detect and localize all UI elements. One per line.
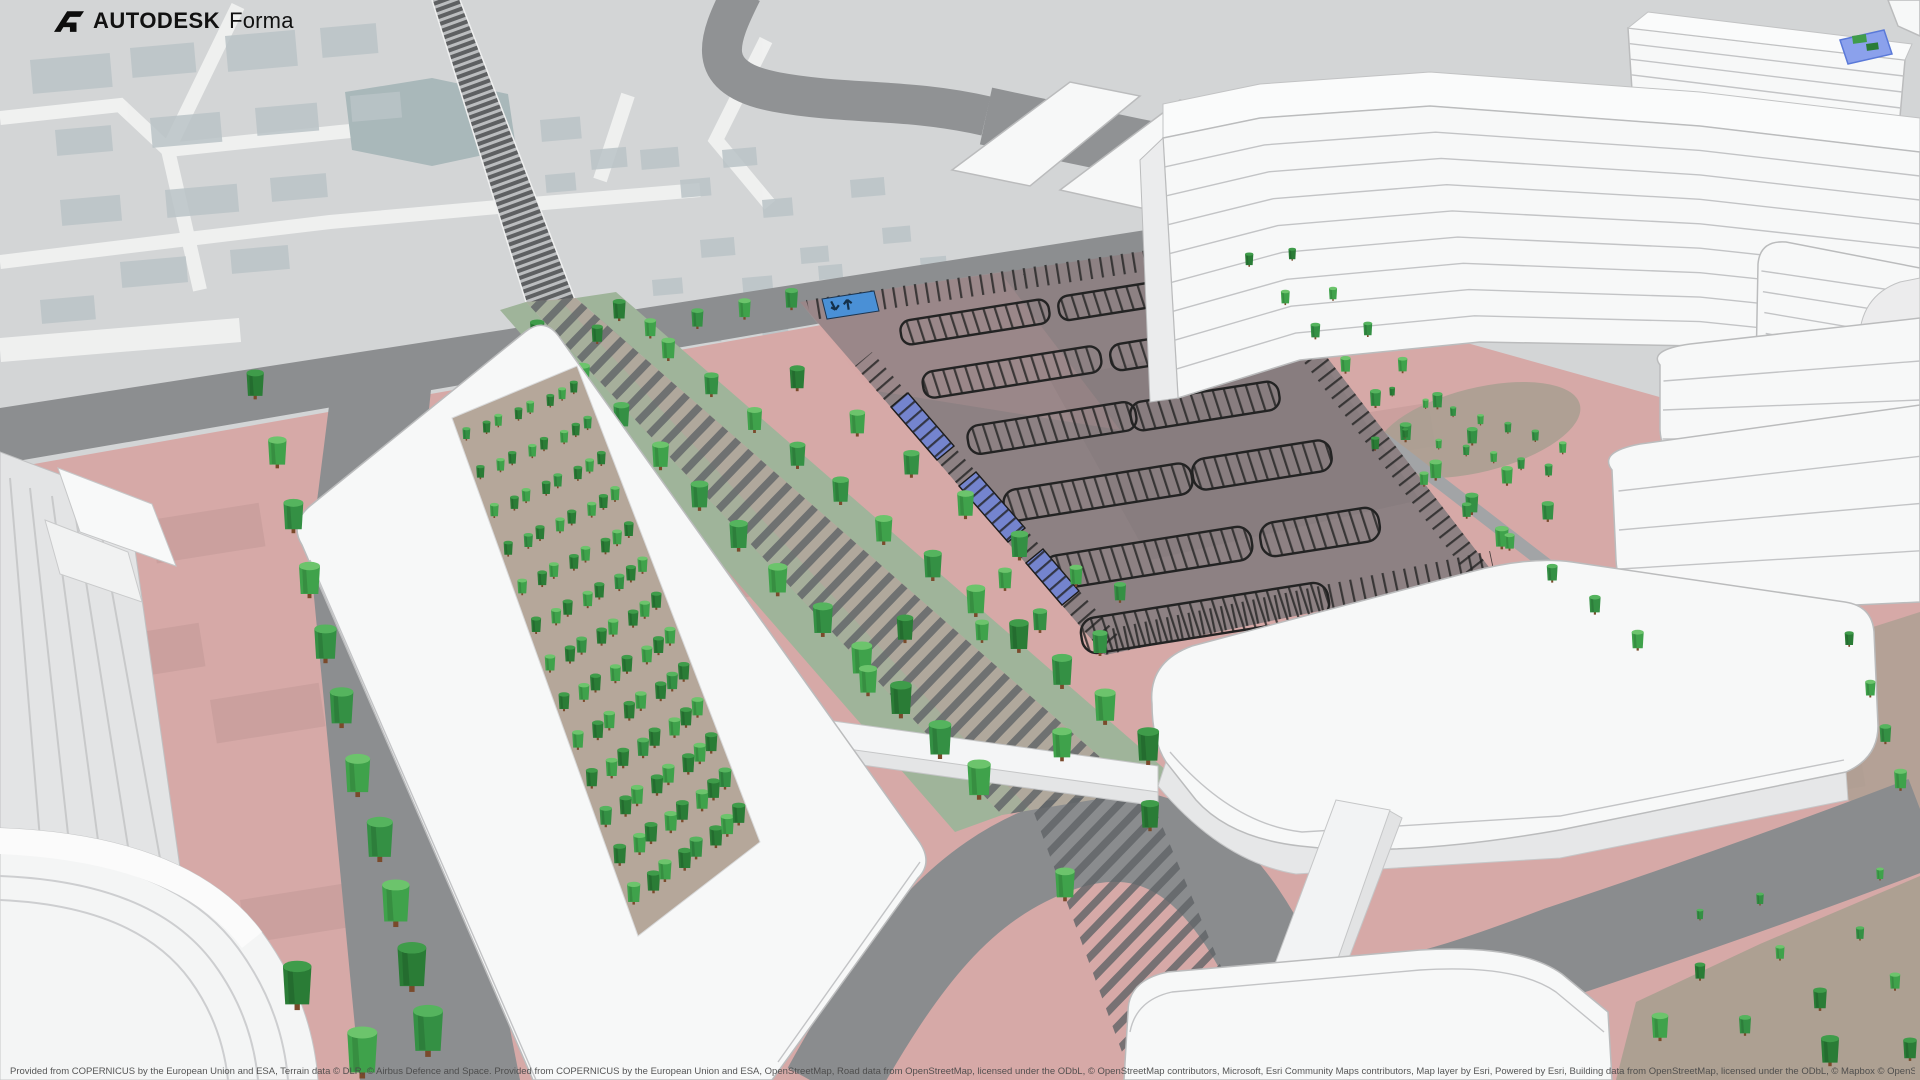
tree[interactable] — [413, 1005, 443, 1057]
tree[interactable] — [590, 674, 601, 693]
tree[interactable] — [738, 298, 750, 319]
tree[interactable] — [572, 423, 580, 437]
tree[interactable] — [628, 610, 639, 628]
tree[interactable] — [1420, 471, 1429, 486]
tree[interactable] — [504, 541, 513, 557]
tree[interactable] — [627, 882, 640, 905]
tree[interactable] — [1033, 608, 1047, 633]
tree[interactable] — [631, 785, 643, 806]
tree[interactable] — [1856, 926, 1864, 940]
tree[interactable] — [610, 664, 621, 683]
tree[interactable] — [682, 753, 694, 774]
tree[interactable] — [567, 510, 576, 526]
map-footprint — [800, 246, 829, 264]
tree[interactable] — [247, 369, 264, 399]
tree[interactable] — [1504, 533, 1514, 551]
tree[interactable] — [1070, 565, 1083, 587]
tree[interactable] — [587, 502, 596, 518]
tree[interactable] — [608, 619, 619, 637]
autodesk-logo-icon — [54, 11, 84, 32]
tree[interactable] — [614, 574, 624, 591]
tree[interactable] — [601, 538, 611, 555]
tree[interactable] — [1559, 441, 1567, 454]
map-footprint — [818, 264, 843, 280]
tree[interactable] — [1477, 414, 1484, 425]
tree[interactable] — [1776, 945, 1785, 961]
map-footprint — [640, 147, 680, 170]
map-footprint — [882, 226, 911, 244]
tree[interactable] — [535, 525, 544, 541]
map-footprint — [590, 147, 628, 170]
tree[interactable] — [1093, 630, 1108, 656]
tree[interactable] — [1695, 963, 1706, 981]
tree[interactable] — [604, 711, 615, 731]
tree[interactable] — [1398, 357, 1407, 373]
tree[interactable] — [664, 811, 677, 833]
tree[interactable] — [583, 591, 593, 608]
tree[interactable] — [690, 837, 703, 860]
tree[interactable] — [494, 414, 502, 428]
tree[interactable] — [1876, 868, 1884, 881]
forma-3d-viewport[interactable]: AUTODESK Forma Provided from COPERNICUS … — [0, 0, 1920, 1080]
tree[interactable] — [729, 520, 747, 552]
tree[interactable] — [583, 416, 591, 430]
tree[interactable] — [599, 494, 608, 510]
tree[interactable] — [1532, 430, 1539, 442]
tree[interactable] — [704, 372, 718, 397]
tree[interactable] — [540, 437, 548, 451]
tree[interactable] — [897, 615, 914, 644]
tree[interactable] — [732, 803, 745, 826]
map-footprint — [762, 197, 793, 218]
tree[interactable] — [1281, 290, 1290, 305]
tree[interactable] — [624, 701, 635, 721]
tree[interactable] — [669, 717, 681, 738]
tree[interactable] — [382, 879, 409, 927]
tree[interactable] — [1501, 466, 1512, 486]
map-footprint — [722, 147, 757, 168]
tree[interactable] — [692, 697, 704, 718]
tree[interactable] — [1329, 287, 1337, 301]
map-footprint — [350, 92, 402, 122]
tree[interactable] — [1402, 428, 1408, 438]
map-footprint — [230, 245, 290, 274]
tree[interactable] — [667, 672, 678, 692]
tree[interactable] — [719, 767, 732, 789]
tree[interactable] — [647, 870, 660, 893]
tree[interactable] — [570, 381, 578, 395]
tree[interactable] — [1055, 868, 1075, 902]
tree[interactable] — [859, 665, 877, 696]
tree[interactable] — [641, 645, 652, 664]
tree[interactable] — [903, 450, 919, 478]
tree[interactable] — [707, 778, 720, 800]
tree[interactable] — [1052, 654, 1072, 689]
tree[interactable] — [645, 822, 658, 844]
tree[interactable] — [691, 308, 703, 329]
tree[interactable] — [619, 795, 631, 816]
tree[interactable] — [1490, 451, 1497, 463]
tree[interactable] — [508, 451, 516, 465]
tree[interactable] — [1697, 909, 1704, 921]
tree[interactable] — [476, 465, 484, 479]
tree[interactable] — [637, 556, 647, 573]
tree[interactable] — [649, 728, 661, 749]
tree[interactable] — [600, 806, 612, 827]
tree[interactable] — [662, 764, 674, 785]
tree[interactable] — [549, 562, 559, 579]
tree[interactable] — [691, 480, 709, 510]
tree[interactable] — [1652, 1013, 1669, 1042]
tree[interactable] — [1423, 399, 1429, 409]
map-footprint — [320, 23, 378, 58]
tree[interactable] — [597, 451, 606, 466]
tree[interactable] — [545, 654, 556, 672]
tree[interactable] — [1589, 595, 1600, 615]
tree[interactable] — [1141, 800, 1159, 831]
tree[interactable] — [1890, 973, 1901, 991]
tree[interactable] — [680, 707, 692, 728]
tree[interactable] — [1389, 387, 1395, 397]
tree[interactable] — [626, 565, 636, 582]
map-footprint — [545, 172, 576, 193]
tree[interactable] — [1288, 248, 1296, 261]
tree[interactable] — [1894, 769, 1907, 791]
tree[interactable] — [606, 758, 618, 779]
tree[interactable] — [1009, 619, 1029, 653]
tree[interactable] — [515, 407, 523, 421]
tree[interactable] — [563, 599, 573, 616]
tree[interactable] — [635, 691, 646, 711]
tree[interactable] — [463, 427, 471, 441]
tree[interactable] — [1462, 502, 1471, 518]
tree[interactable] — [283, 961, 312, 1010]
tree[interactable] — [1545, 464, 1553, 478]
tree[interactable] — [966, 584, 985, 617]
tree[interactable] — [528, 444, 536, 458]
tree[interactable] — [1114, 582, 1126, 603]
tree[interactable] — [1880, 724, 1892, 744]
tree[interactable] — [490, 503, 499, 518]
tree[interactable] — [696, 789, 709, 811]
tree[interactable] — [284, 499, 304, 533]
tree[interactable] — [1756, 893, 1764, 906]
map-footprint — [60, 195, 122, 226]
tree[interactable] — [768, 563, 787, 596]
tree[interactable] — [299, 562, 320, 598]
tree[interactable] — [1370, 389, 1381, 408]
tree[interactable] — [678, 848, 691, 871]
tree[interactable] — [542, 481, 551, 496]
tree[interactable] — [651, 592, 662, 610]
tree[interactable] — [555, 517, 564, 533]
tree[interactable] — [967, 759, 990, 799]
tree[interactable] — [644, 318, 656, 338]
tree[interactable] — [785, 288, 798, 310]
tree[interactable] — [929, 720, 952, 759]
tree[interactable] — [832, 476, 849, 505]
map-footprint — [150, 112, 222, 148]
tree[interactable] — [633, 833, 646, 855]
tree[interactable] — [998, 568, 1012, 591]
tree[interactable] — [510, 496, 519, 511]
tree[interactable] — [553, 473, 562, 488]
tree[interactable] — [1504, 422, 1511, 434]
tree[interactable] — [1436, 439, 1442, 450]
tree[interactable] — [581, 546, 591, 563]
tree[interactable] — [560, 430, 568, 444]
map-footprint — [700, 237, 735, 258]
tree[interactable] — [790, 442, 806, 469]
map-footprint — [540, 117, 582, 142]
tree[interactable] — [1865, 680, 1875, 698]
tree[interactable] — [1813, 988, 1827, 1011]
map-attribution: Provided from COPERNICUS by the European… — [10, 1066, 1915, 1077]
tree[interactable] — [1821, 1035, 1839, 1066]
tree[interactable] — [1739, 1015, 1751, 1036]
tree[interactable] — [314, 624, 336, 663]
tree[interactable] — [694, 743, 706, 764]
tree[interactable] — [1517, 457, 1525, 470]
tree[interactable] — [537, 570, 547, 587]
tree[interactable] — [1903, 1038, 1917, 1061]
tree[interactable] — [1371, 436, 1379, 450]
tree[interactable] — [655, 681, 666, 701]
tree[interactable] — [975, 620, 989, 643]
tree[interactable] — [367, 817, 393, 862]
brand-name: AUTODESK — [93, 8, 220, 34]
tree[interactable] — [345, 754, 370, 797]
tree[interactable] — [612, 530, 622, 547]
tree[interactable] — [890, 681, 912, 718]
tree[interactable] — [330, 687, 354, 728]
tree[interactable] — [1450, 406, 1456, 417]
tree[interactable] — [1137, 727, 1159, 765]
map-footprint — [850, 177, 885, 198]
tree[interactable] — [558, 387, 566, 401]
tree[interactable] — [574, 466, 583, 481]
tree[interactable] — [594, 582, 604, 599]
tree[interactable] — [522, 488, 531, 503]
app-logo: AUTODESK Forma — [54, 8, 294, 34]
tree[interactable] — [790, 365, 805, 391]
tree[interactable] — [559, 692, 570, 711]
tree[interactable] — [496, 458, 504, 472]
tree[interactable] — [586, 768, 598, 789]
tree[interactable] — [1052, 728, 1072, 762]
tree[interactable] — [1467, 427, 1478, 445]
tree[interactable] — [483, 421, 491, 435]
map-footprint — [680, 177, 711, 198]
tree[interactable] — [1311, 323, 1321, 340]
tree[interactable] — [565, 645, 576, 663]
tree[interactable] — [613, 299, 626, 321]
tree[interactable] — [585, 458, 594, 473]
tree[interactable] — [662, 338, 676, 361]
tree[interactable] — [624, 521, 634, 538]
map-footprint — [652, 277, 683, 296]
tree[interactable] — [1011, 531, 1028, 561]
tree[interactable] — [813, 602, 833, 637]
tree[interactable] — [526, 401, 534, 415]
tree[interactable] — [875, 515, 892, 545]
tree[interactable] — [1095, 689, 1116, 725]
tree[interactable] — [637, 738, 649, 759]
tree[interactable] — [1430, 460, 1442, 481]
tree[interactable] — [524, 533, 533, 549]
tree[interactable] — [546, 394, 554, 408]
tree[interactable] — [651, 774, 663, 795]
attribution-text: Provided from COPERNICUS by the European… — [10, 1066, 1915, 1077]
map-footprint — [225, 30, 298, 72]
tree[interactable] — [569, 554, 579, 571]
tree[interactable] — [1542, 501, 1554, 522]
tree[interactable] — [517, 579, 527, 596]
tree[interactable] — [658, 859, 671, 882]
tree[interactable] — [617, 748, 629, 769]
tree[interactable] — [678, 662, 689, 682]
tree[interactable] — [1363, 322, 1372, 337]
tree[interactable] — [957, 490, 974, 519]
tree[interactable] — [1340, 356, 1350, 374]
map-footprint — [55, 125, 113, 156]
tree[interactable] — [576, 637, 587, 655]
tree[interactable] — [1245, 252, 1253, 266]
tree[interactable] — [592, 720, 603, 740]
tree[interactable] — [652, 441, 669, 470]
tree[interactable] — [665, 627, 676, 646]
tree[interactable] — [572, 730, 583, 750]
map-footprint — [255, 103, 319, 136]
tree[interactable] — [1463, 445, 1470, 457]
tree[interactable] — [653, 636, 664, 655]
product-name: Forma — [229, 8, 294, 34]
tree[interactable] — [268, 436, 286, 468]
scene-canvas[interactable] — [0, 0, 1920, 1080]
tree[interactable] — [1547, 564, 1558, 583]
tree[interactable] — [531, 617, 541, 634]
tree[interactable] — [924, 550, 942, 581]
tree[interactable] — [592, 324, 603, 344]
tree[interactable] — [705, 732, 717, 753]
tree[interactable] — [596, 628, 607, 646]
map-footprint — [270, 173, 328, 202]
tree[interactable] — [1632, 630, 1644, 651]
tree[interactable] — [610, 486, 619, 502]
map-footprint — [40, 295, 96, 324]
tree[interactable] — [613, 844, 626, 866]
tree[interactable] — [622, 655, 633, 674]
map-footprint — [130, 42, 196, 77]
tree[interactable] — [1432, 392, 1442, 409]
tree[interactable] — [747, 407, 762, 433]
tree[interactable] — [850, 410, 866, 437]
tree[interactable] — [676, 800, 689, 822]
tree[interactable] — [578, 683, 589, 702]
map-footprint — [30, 53, 113, 94]
tree[interactable] — [709, 825, 722, 848]
tree[interactable] — [721, 814, 734, 837]
tree[interactable] — [1845, 631, 1854, 647]
tree[interactable] — [551, 608, 561, 625]
tree[interactable] — [639, 601, 650, 619]
tree[interactable] — [398, 942, 427, 992]
